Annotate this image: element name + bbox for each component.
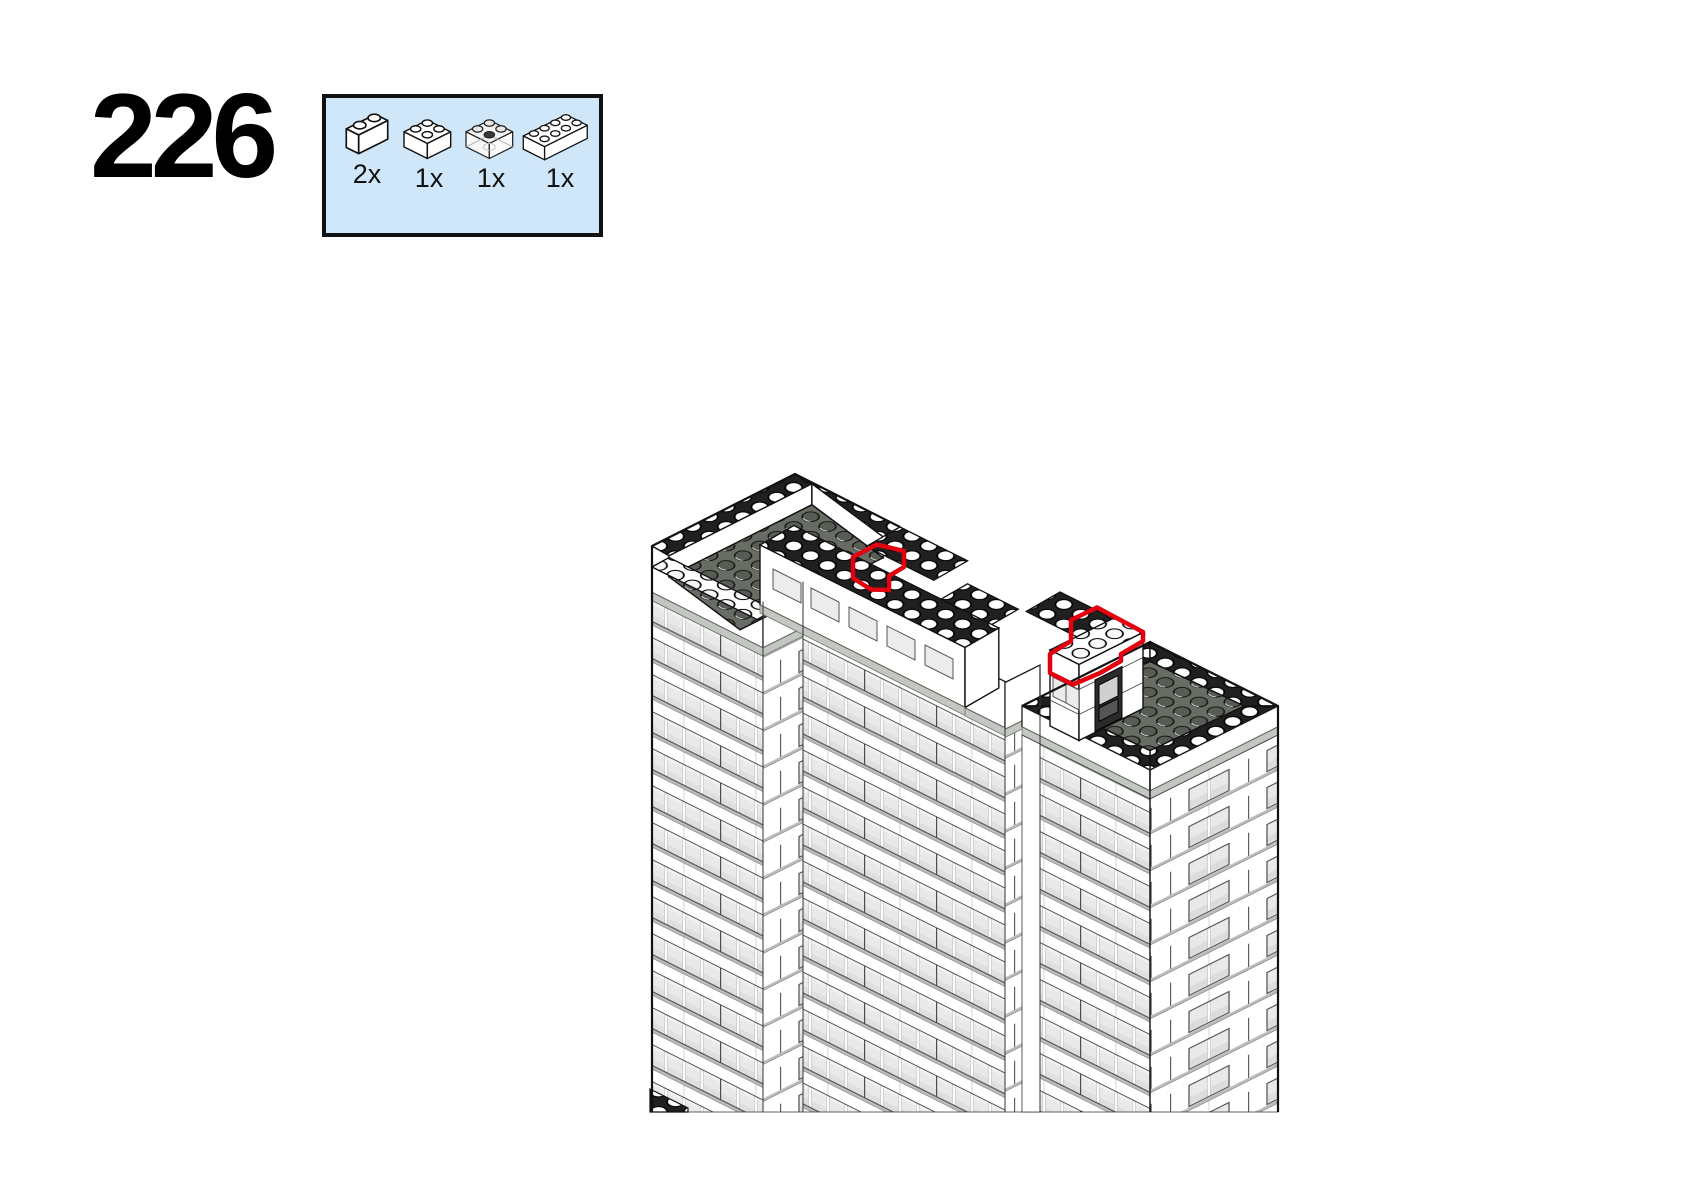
building-figure (600, 440, 1300, 1120)
part-count: 1x (398, 164, 460, 194)
part-item: 2x (336, 108, 398, 190)
parts-callout-box: 2x 1x (322, 94, 603, 237)
instruction-page: 226 2x (0, 0, 1684, 1192)
part-count: 1x (460, 164, 522, 194)
part-item: 1x (398, 108, 460, 194)
part-count: 1x (520, 164, 600, 194)
brick-2x4-icon (520, 108, 602, 164)
part-item: 1x (460, 108, 522, 194)
brick-2x2-icon (399, 108, 459, 164)
part-item: 1x (520, 108, 600, 194)
step-number: 226 (90, 76, 272, 196)
part-count: 2x (336, 160, 398, 190)
brick-1x2-icon (338, 108, 396, 160)
brick-2x2-trans-icon (461, 108, 521, 164)
isometric-building-drawing (600, 440, 1300, 1120)
